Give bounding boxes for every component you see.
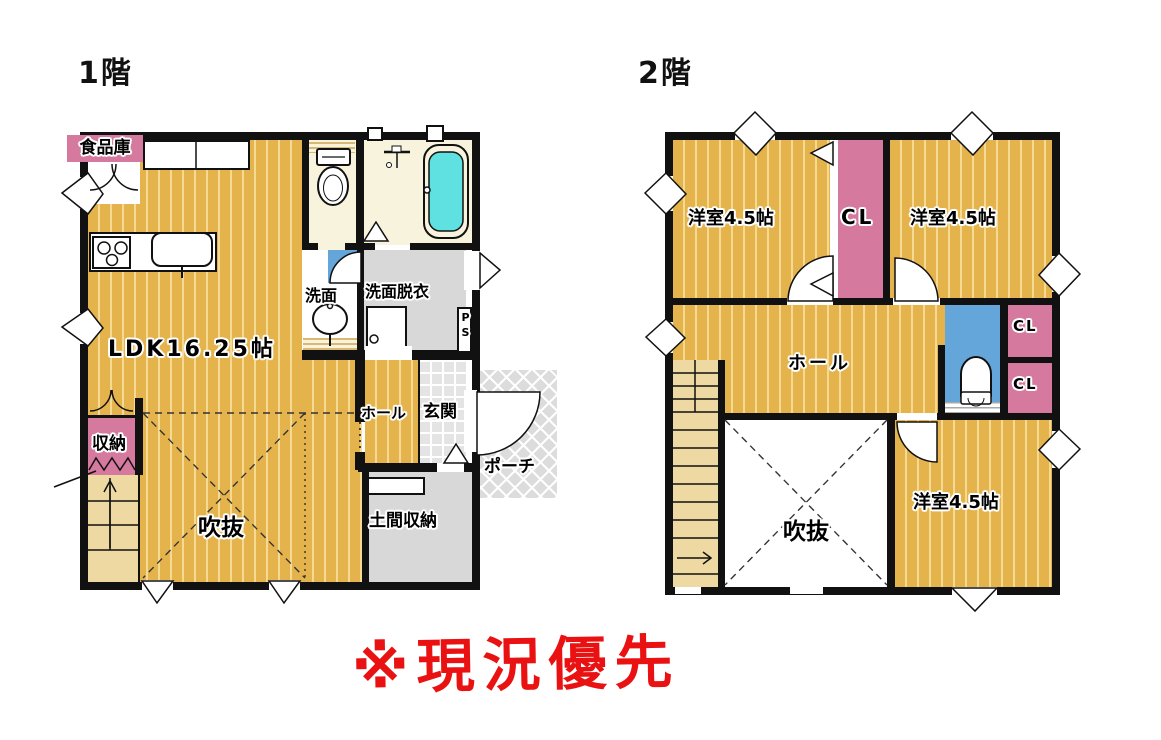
bathroom	[360, 140, 472, 245]
toilet1-shelf-band	[309, 142, 355, 153]
floorplan-canvas: 1階 食品庫 LDK16.25帖 洗面 洗面脱衣	[0, 0, 1161, 740]
washroom-cabinet-band	[303, 338, 360, 350]
window-gap	[951, 132, 993, 140]
wall	[883, 140, 890, 298]
floor2-title: 2階	[638, 48, 693, 92]
hall2-label: ホール	[788, 349, 851, 375]
kitchen-cabinet	[143, 140, 250, 170]
bedroom-nw-label: 洋室4.5帖	[688, 204, 774, 230]
window-gap	[269, 580, 300, 590]
window-gap	[1052, 256, 1060, 292]
window-gap	[952, 587, 997, 595]
door-gap	[437, 463, 464, 472]
floor1-title: 1階	[78, 48, 133, 92]
pantry-label: 食品庫	[80, 138, 131, 158]
window-gap	[665, 176, 673, 211]
wall	[833, 298, 893, 305]
wall	[718, 360, 725, 587]
window-gap	[142, 580, 173, 590]
wall	[88, 415, 135, 418]
void1-label: 吹抜	[198, 508, 244, 542]
wall	[887, 420, 895, 587]
wall-vent-gap	[790, 587, 823, 594]
void2-label: 吹抜	[783, 512, 829, 546]
wall	[940, 298, 1052, 305]
doma-shelf	[367, 477, 425, 495]
washlet-control-icon	[367, 127, 383, 141]
pantry-label-box: 食品庫	[67, 135, 143, 162]
wall	[410, 243, 472, 250]
entrance-step-line	[418, 360, 420, 463]
wall	[135, 398, 143, 475]
wall	[1000, 305, 1008, 415]
toilet1-room	[302, 140, 360, 250]
pantry-door-area	[88, 162, 140, 204]
ldk-floor-area-lower	[302, 360, 362, 582]
doma-label: 土間収納	[369, 506, 437, 531]
stairs2-area	[673, 360, 718, 587]
front-door-gap	[464, 390, 477, 452]
ldk-label: LDK16.25帖	[108, 331, 276, 363]
closet-center-label: CL	[841, 205, 874, 229]
bedroom-ne-label: 洋室4.5帖	[910, 204, 996, 230]
window-gap	[1052, 431, 1060, 468]
window-icon	[480, 253, 500, 288]
wall	[302, 243, 318, 250]
porch-area	[473, 370, 557, 498]
closet-upper-label: CL	[1013, 317, 1038, 335]
hall1-label: ホール	[361, 402, 406, 423]
pipe-space-label: PS	[459, 311, 472, 341]
stairs1-area	[88, 475, 139, 582]
washroom-door-swing	[328, 250, 360, 283]
void2-area	[725, 420, 887, 587]
window-gap	[665, 322, 673, 353]
window-gap	[735, 132, 775, 140]
wall	[673, 298, 787, 305]
closet-lower-label: CL	[1013, 375, 1038, 393]
closet-door-strip	[830, 140, 838, 298]
wall	[718, 413, 897, 420]
wall	[302, 140, 309, 250]
wall	[357, 250, 364, 350]
wall	[938, 345, 945, 415]
stairs-edge-line	[138, 475, 140, 582]
handwritten-note: ※現況優先	[351, 615, 681, 705]
bedroom-se-label: 洋室4.5帖	[913, 488, 999, 514]
washroom-label: 洗面	[305, 282, 337, 306]
wall	[345, 243, 375, 250]
wall-vent-gap	[675, 587, 701, 594]
washing-machine	[366, 306, 407, 348]
wall	[937, 413, 1052, 420]
bath-faucet-icon	[426, 125, 444, 142]
wall	[356, 140, 364, 250]
door-gap	[365, 346, 412, 360]
window-gap	[80, 177, 88, 209]
dressing-label: 洗面脱衣	[365, 278, 429, 302]
wall	[1008, 357, 1052, 363]
toilet2-room	[945, 305, 1000, 415]
kitchen-counter	[89, 232, 217, 272]
porch-label: ポーチ	[484, 452, 535, 477]
closet1-label: 収納	[92, 429, 126, 454]
window-gap	[80, 313, 88, 344]
entrance-label: 玄関	[423, 397, 457, 422]
window-gap	[464, 251, 480, 290]
